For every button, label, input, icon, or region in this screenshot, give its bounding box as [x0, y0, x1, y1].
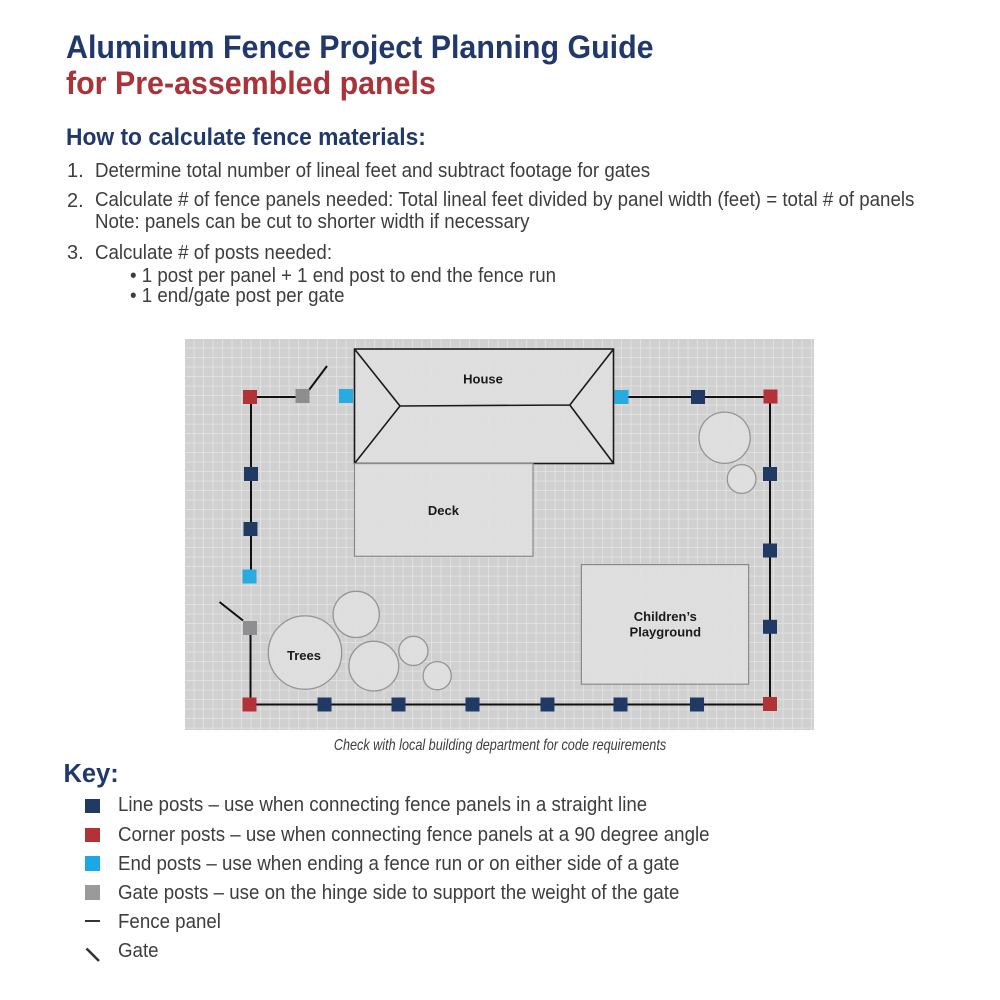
svg-text:Trees: Trees: [287, 648, 321, 663]
svg-text:Deck: Deck: [428, 503, 460, 518]
svg-text:House: House: [463, 371, 503, 386]
svg-text:Children’s: Children’s: [634, 609, 697, 624]
svg-text:Playground: Playground: [630, 625, 702, 640]
